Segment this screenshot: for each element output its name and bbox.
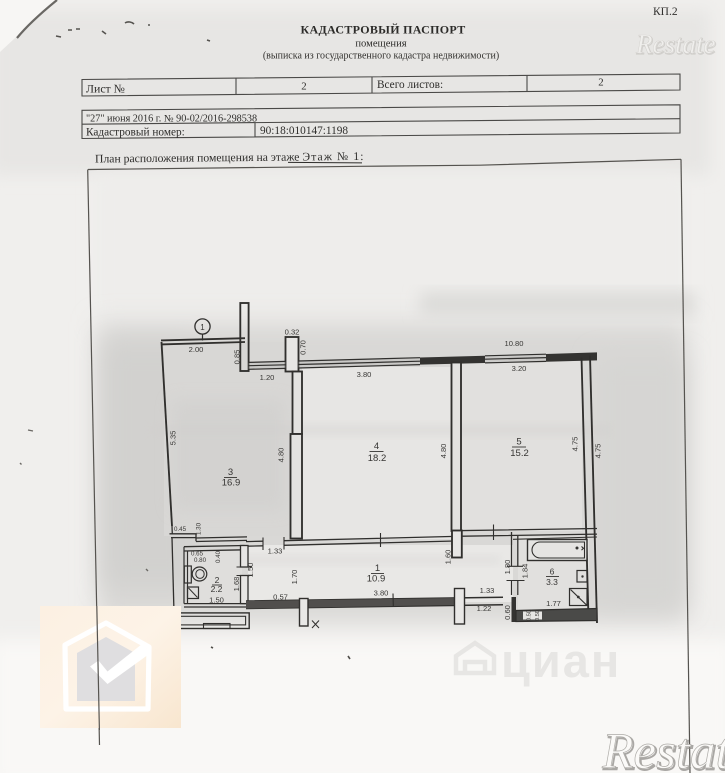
svg-text:2.00: 2.00 (189, 345, 204, 354)
svg-text:2: 2 (598, 77, 603, 89)
svg-text:6: 6 (550, 567, 555, 577)
svg-text:0.50: 0.50 (535, 610, 541, 621)
svg-text:0.80: 0.80 (194, 557, 207, 564)
svg-text:Всего листов:: Всего листов: (377, 79, 443, 91)
svg-text:1.70: 1.70 (290, 570, 299, 585)
svg-text:1.20: 1.20 (260, 373, 275, 382)
svg-text:0.60: 0.60 (503, 605, 512, 620)
svg-text:циан: циан (501, 634, 621, 687)
svg-text:"27" июня 2016 г. № 90-02/2016: "27" июня 2016 г. № 90-02/2016-298538 (86, 114, 257, 125)
svg-text:1.33: 1.33 (268, 547, 283, 556)
svg-text:5: 5 (516, 437, 521, 448)
svg-text:90:18:010147:1198: 90:18:010147:1198 (260, 125, 348, 137)
svg-text:1.33: 1.33 (480, 586, 495, 595)
svg-text:0.50: 0.50 (527, 610, 533, 621)
svg-text:4: 4 (374, 441, 379, 452)
svg-text:5.35: 5.35 (169, 431, 178, 446)
svg-text:(выписка из государственного к: (выписка из государственного кадастра не… (263, 51, 499, 62)
svg-text:1.80: 1.80 (503, 560, 512, 575)
svg-text:1.50: 1.50 (209, 596, 224, 605)
svg-text:0.45: 0.45 (174, 526, 187, 533)
svg-text:15.2: 15.2 (510, 448, 529, 459)
svg-text:Лист №: Лист № (86, 82, 125, 96)
svg-text:0.32: 0.32 (285, 328, 300, 337)
svg-text:3: 3 (228, 467, 233, 478)
svg-text:1: 1 (200, 323, 205, 332)
svg-text:1.84: 1.84 (521, 564, 530, 579)
svg-text:4.75: 4.75 (594, 444, 603, 459)
svg-text:16.9: 16.9 (222, 478, 241, 489)
svg-text:0.70: 0.70 (299, 340, 308, 355)
svg-text:0.85: 0.85 (233, 350, 242, 365)
svg-text:помещения: помещения (355, 39, 406, 50)
svg-text:1.60: 1.60 (444, 550, 453, 565)
svg-text:1.77: 1.77 (546, 599, 561, 608)
svg-text:3.80: 3.80 (374, 589, 389, 598)
svg-text:Кадастровый номер:: Кадастровый номер: (86, 127, 185, 139)
svg-text:План расположения помещения на: План расположения помещения на этаже Эта… (95, 150, 365, 166)
svg-text:КАДАСТРОВЫЙ ПАСПОРТ: КАДАСТРОВЫЙ ПАСПОРТ (301, 23, 466, 37)
svg-text:4.80: 4.80 (439, 444, 448, 459)
svg-text:4.80: 4.80 (277, 448, 286, 463)
svg-text:КП.2: КП.2 (653, 6, 678, 18)
svg-text:3.20: 3.20 (512, 364, 527, 373)
svg-text:3.3: 3.3 (546, 577, 558, 587)
svg-text:18.2: 18.2 (368, 453, 387, 464)
svg-text:0.40: 0.40 (215, 550, 222, 563)
svg-text:1: 1 (375, 563, 380, 574)
svg-text:Restate: Restate (635, 29, 715, 59)
svg-text:1.22: 1.22 (477, 604, 492, 613)
svg-text:2: 2 (301, 81, 306, 93)
svg-text:10.80: 10.80 (504, 339, 523, 348)
svg-text:1.30: 1.30 (196, 522, 203, 535)
svg-text:Restate: Restate (601, 724, 725, 773)
svg-text:4.75: 4.75 (571, 437, 580, 452)
svg-text:1.50: 1.50 (246, 563, 255, 578)
svg-text:10.9: 10.9 (367, 574, 386, 585)
svg-text:3.80: 3.80 (357, 370, 372, 379)
svg-text:1.68: 1.68 (232, 577, 241, 592)
svg-text:2.2: 2.2 (211, 584, 223, 594)
svg-text:0.57: 0.57 (273, 593, 288, 602)
